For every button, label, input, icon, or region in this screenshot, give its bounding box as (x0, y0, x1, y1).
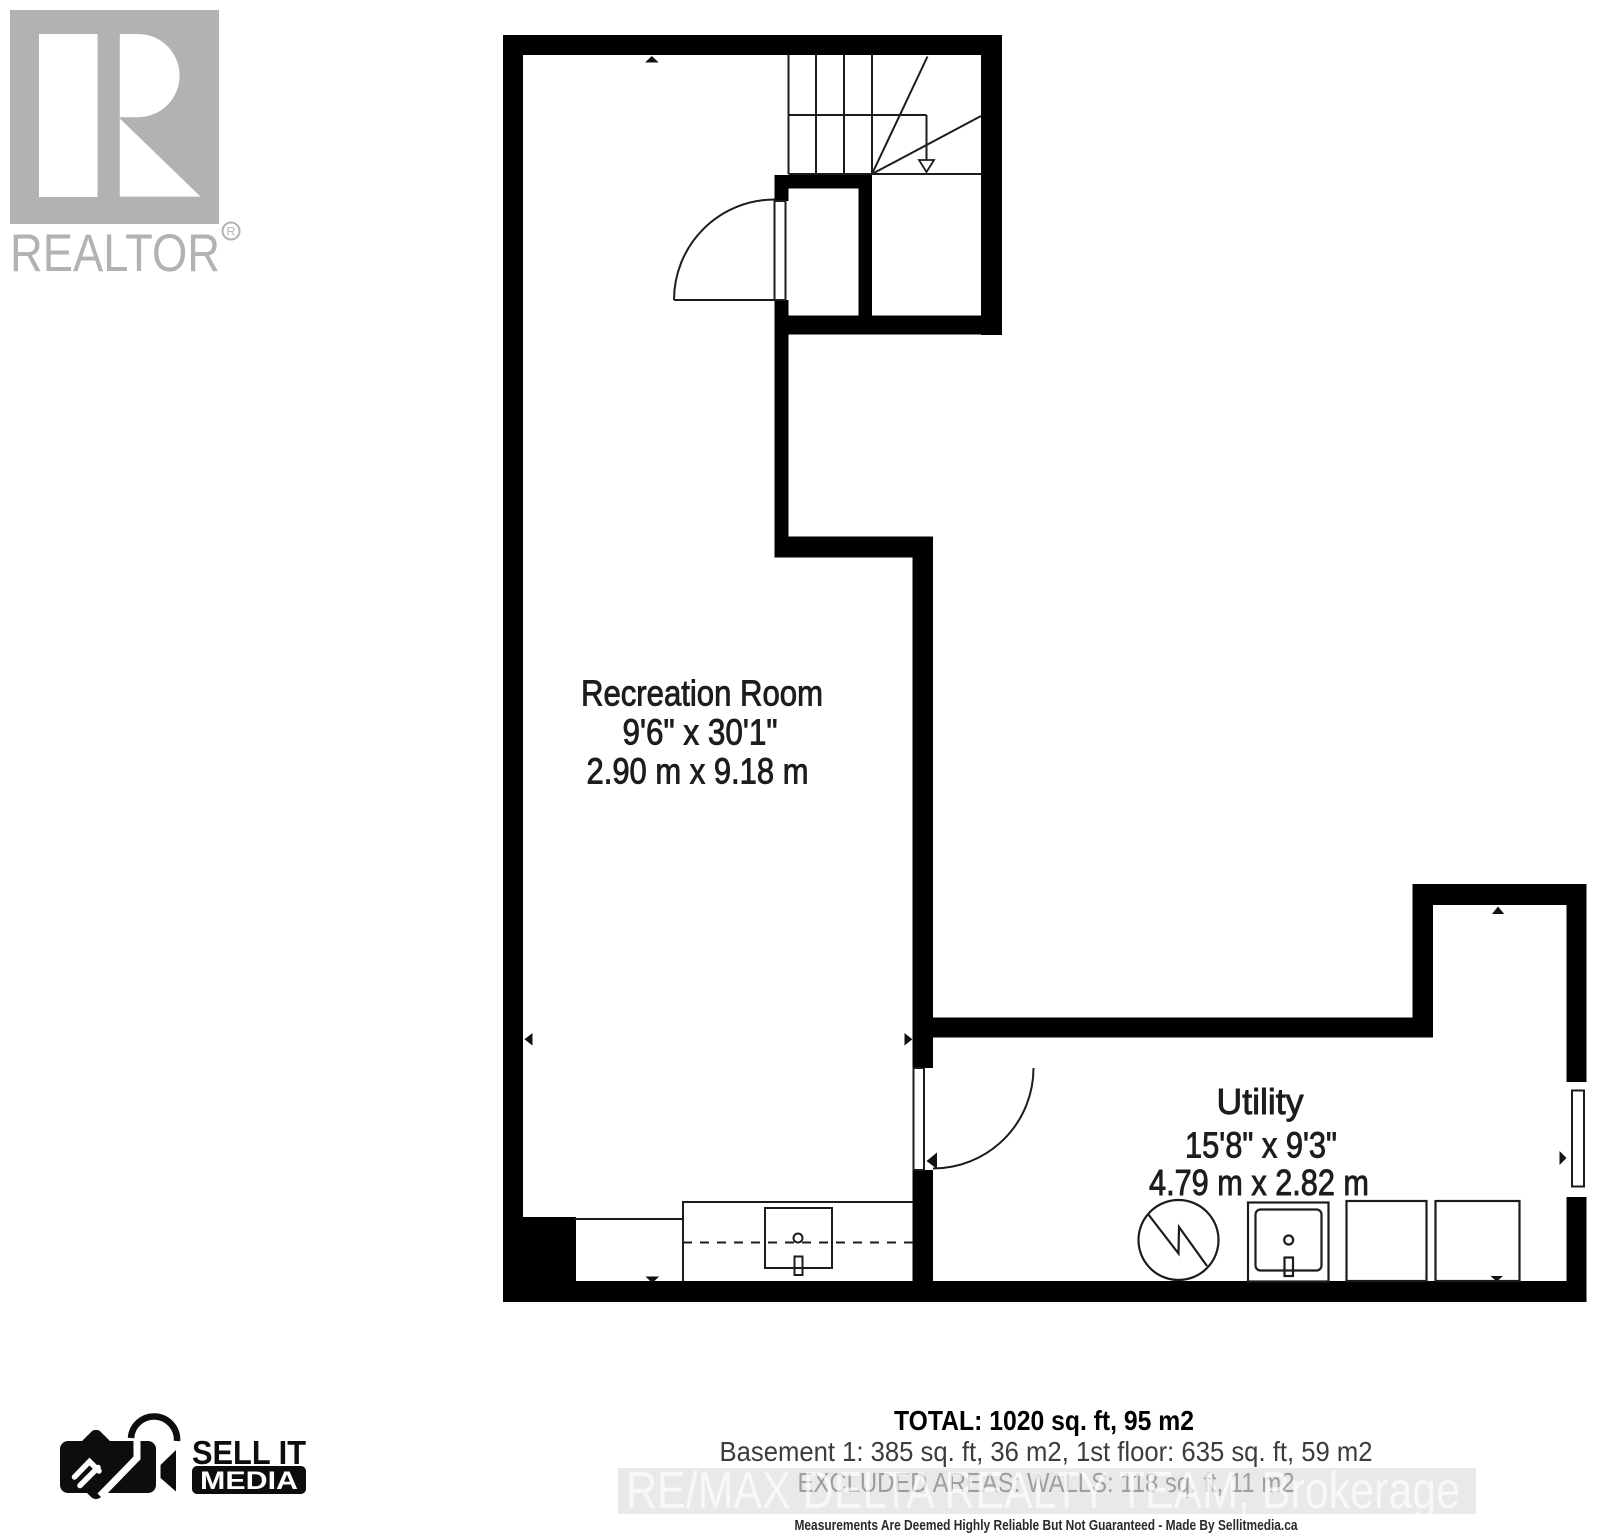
svg-text:MEDIA: MEDIA (200, 1467, 298, 1495)
svg-text:2.90 m x 9.18 m: 2.90 m x 9.18 m (587, 751, 809, 792)
svg-text:TOTAL: 1020 sq. ft, 95 m2: TOTAL: 1020 sq. ft, 95 m2 (894, 1405, 1194, 1436)
svg-text:SELL IT: SELL IT (192, 1434, 306, 1471)
svg-text:REALTOR: REALTOR (10, 224, 220, 283)
svg-text:15'8" x 9'3": 15'8" x 9'3" (1185, 1125, 1337, 1166)
svg-text:Utility: Utility (1217, 1081, 1304, 1122)
svg-text:Measurements Are Deemed Highly: Measurements Are Deemed Highly Reliable … (795, 1518, 1299, 1534)
svg-text:Recreation Room: Recreation Room (581, 673, 823, 714)
svg-text:R: R (227, 225, 236, 239)
svg-text:9'6" x 30'1": 9'6" x 30'1" (623, 712, 778, 753)
svg-text:RE/MAX DELTA REALTY TEAM, Brok: RE/MAX DELTA REALTY TEAM, Brokerage (626, 1462, 1460, 1520)
svg-text:4.79 m x 2.82 m: 4.79 m x 2.82 m (1149, 1162, 1369, 1203)
